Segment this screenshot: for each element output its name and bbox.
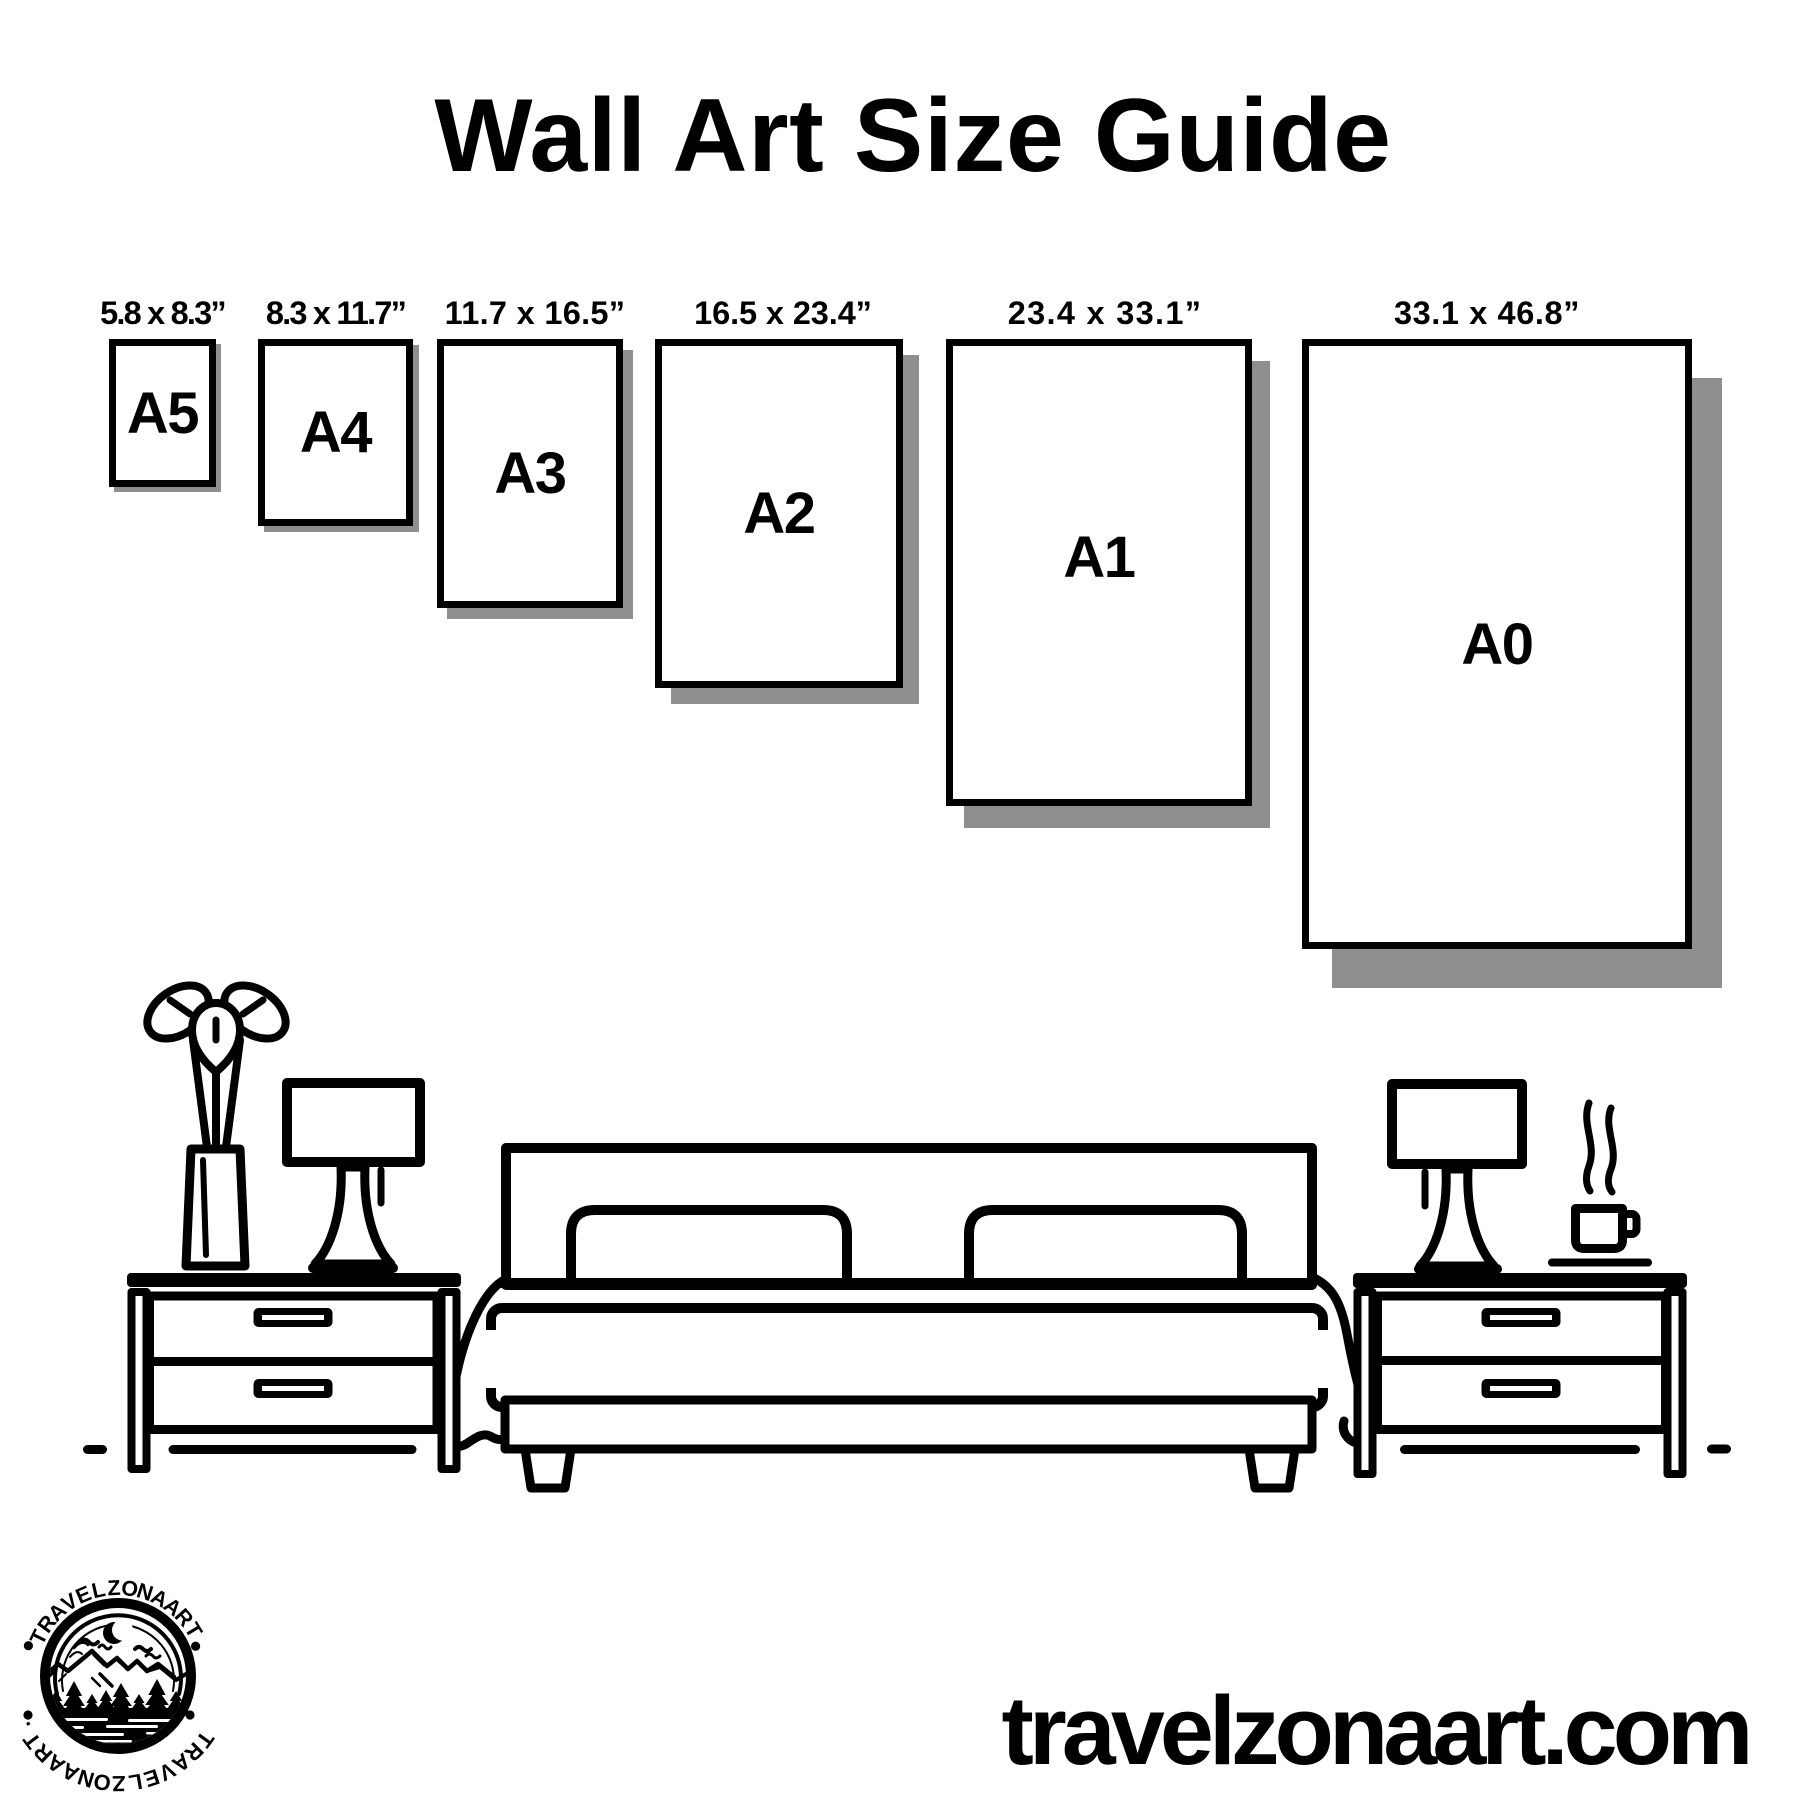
svg-text:Z: Z [112,1771,126,1796]
svg-text:.: . [188,1637,213,1651]
svg-text:L: L [127,1769,144,1796]
svg-text:Z: Z [107,1576,121,1601]
